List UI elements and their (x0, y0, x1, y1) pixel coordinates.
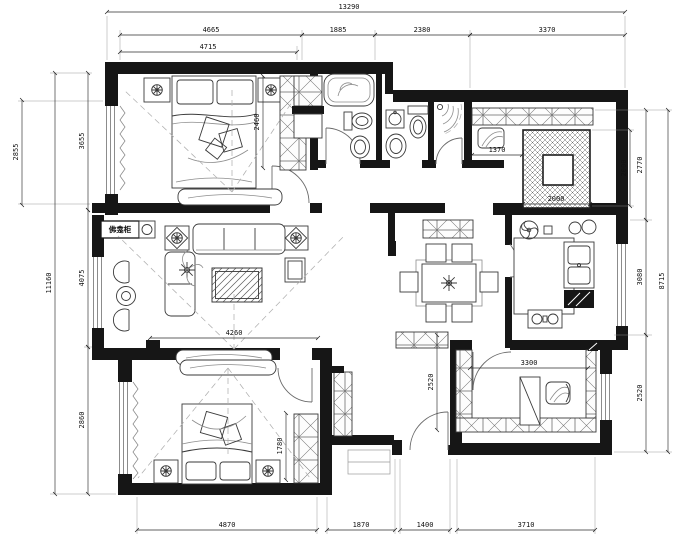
nightstand2-right (256, 460, 280, 483)
gas-meter-large (582, 220, 596, 234)
end-table-left (165, 226, 189, 250)
centerpiece-plant (441, 275, 457, 291)
handle-black (330, 366, 344, 373)
end-table-right (284, 226, 308, 250)
round-table (117, 287, 136, 306)
sideboard (423, 220, 473, 238)
shrine-cabinet: 佛龛柜 (101, 221, 155, 238)
door-bedroom2 (278, 368, 312, 402)
door-shower (436, 138, 462, 164)
linen-closet (294, 76, 322, 106)
switch-box (544, 226, 552, 234)
bed-double (172, 76, 256, 188)
stove (528, 310, 562, 328)
sink-bath2 (386, 110, 404, 128)
dim-right-1: 2770 (636, 157, 644, 174)
closet-shaft-area (472, 108, 593, 208)
dim-right-shaft: 2000 (620, 160, 628, 177)
shrine-cabinet-label: 佛龛柜 (108, 224, 132, 234)
kitchen (514, 220, 596, 328)
bathtub (324, 74, 374, 106)
coffee-table (212, 268, 262, 302)
dim-top-3: 2380 (414, 26, 431, 34)
desk (520, 377, 540, 425)
floor-plan-drawing: 佛龛柜 (0, 0, 700, 548)
living-room: 佛龛柜 (101, 221, 344, 365)
toilet-bath1 (344, 112, 372, 130)
hall-closet (396, 332, 448, 348)
nightstand-left (144, 78, 170, 102)
kitchen-appliance (564, 290, 594, 308)
dim-bottom-4: 3710 (518, 521, 535, 529)
dim-left-2: 4075 (78, 270, 86, 287)
dim-right-overall: 8715 (658, 273, 666, 290)
dim-top-4: 3370 (539, 26, 556, 34)
dim-study-width: 3300 (521, 359, 538, 367)
dim-top-2: 1885 (330, 26, 347, 34)
window-bedroom2 (120, 382, 139, 479)
bedroom2 (138, 360, 318, 484)
window-kitchen (618, 244, 626, 326)
dim-left-3: 2860 (78, 412, 86, 429)
door-entry (410, 412, 448, 450)
dim-bottom-3: 1400 (417, 521, 434, 529)
curtain-line (133, 382, 138, 479)
bath-cabinet (294, 114, 322, 138)
bedroom1 (124, 76, 306, 205)
kitchen-sink (564, 242, 594, 288)
window-bedroom1 (107, 106, 126, 194)
window-study (602, 374, 610, 420)
armchair-bottom (113, 309, 129, 331)
shower-head (437, 104, 461, 134)
gas-meter-small (569, 222, 581, 234)
dim-shaft-width: 2000 (548, 195, 565, 203)
dim-right-2: 3080 (636, 269, 644, 286)
bench (478, 128, 504, 148)
dining-room (388, 220, 498, 322)
study (456, 342, 598, 432)
shoe-cabinet (334, 372, 352, 436)
dim-bottom-2: 1870 (353, 521, 370, 529)
dim-bottom-1: 4870 (219, 521, 236, 529)
nightstand2-left (154, 460, 178, 483)
wardrobe-study-left (456, 350, 472, 428)
toilet-bath2 (408, 106, 428, 138)
dim-living-width: 4260 (226, 329, 243, 337)
curtain-line (120, 106, 125, 190)
wardrobe-study-right (586, 350, 596, 418)
wall-stub-black (388, 241, 396, 256)
basin-bath1 (351, 136, 370, 158)
entry-steps (348, 450, 390, 474)
dim-closet-width: 1370 (489, 146, 506, 154)
armchair-top (113, 261, 129, 283)
exhaust-fan (520, 221, 538, 239)
window-living (94, 257, 102, 328)
closet-row (472, 108, 593, 125)
dim-top-overall: 13290 (338, 3, 359, 11)
tv-cabinet-bedroom1 (178, 189, 282, 205)
desk-chair (546, 382, 570, 404)
floor-plan-page: 佛龛柜 (0, 0, 700, 548)
dim-left-1: 3655 (78, 133, 86, 150)
door-study (473, 352, 511, 390)
dim-bed1-depth: 2460 (253, 114, 261, 131)
dim-left-outer: 2855 (12, 144, 20, 161)
dim-bed2-depth: 1780 (276, 438, 284, 455)
foyer (330, 332, 448, 474)
basin-bath2 (386, 134, 406, 158)
dim-corridor-depth: 2520 (427, 374, 435, 391)
dim-right-3: 2520 (636, 385, 644, 402)
dim-left-overall: 11160 (45, 272, 53, 293)
dim-top-sub: 4715 (200, 43, 217, 51)
bed-double-2 (182, 404, 252, 484)
label-bar (292, 106, 324, 114)
dim-top-1: 4665 (203, 26, 220, 34)
